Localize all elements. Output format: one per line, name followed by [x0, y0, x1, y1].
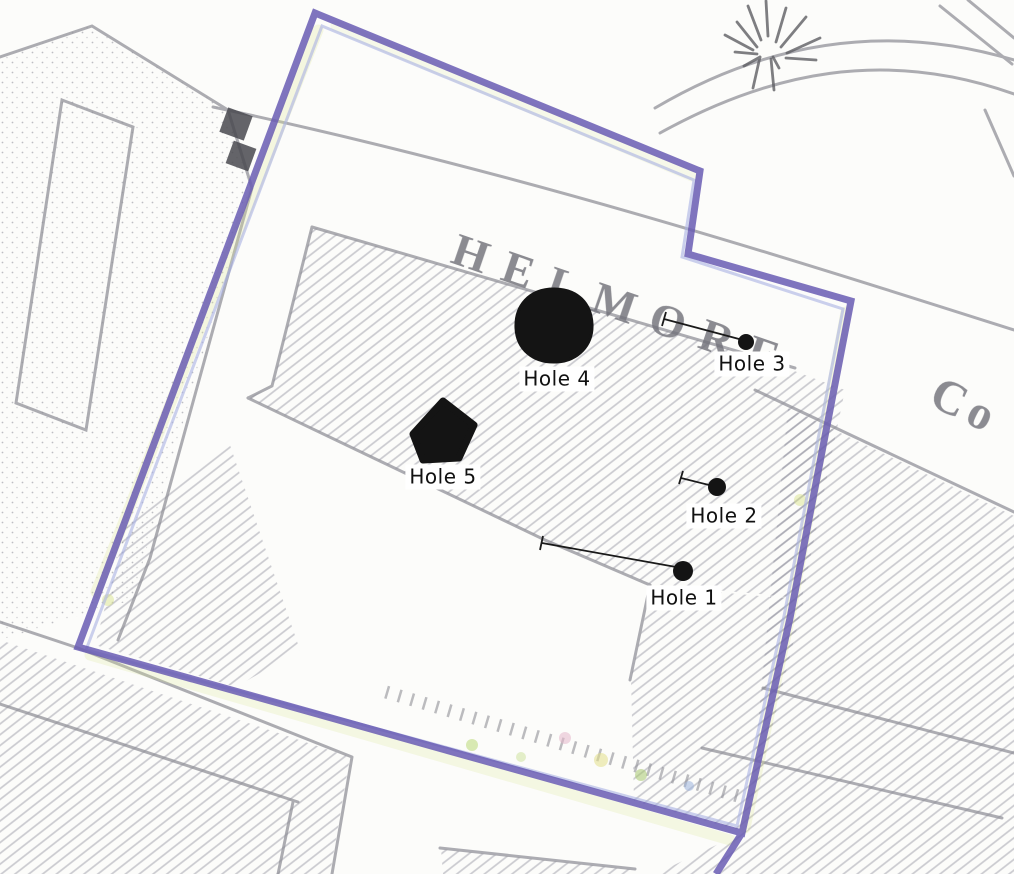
map-canvas: HELMORE Co	[0, 0, 1014, 874]
hole-4-label: Hole 4	[519, 367, 594, 392]
hole-3-marker	[738, 334, 754, 350]
hole-5-label: Hole 5	[405, 465, 480, 490]
street-name-suffix-text: Co	[922, 366, 1009, 445]
hole-2-label: Hole 2	[686, 504, 761, 529]
hole-2-marker	[708, 478, 726, 496]
hole-4-marker	[516, 289, 592, 362]
hole-1-label: Hole 1	[646, 586, 721, 611]
hole-3-label: Hole 3	[714, 352, 789, 377]
hole-1-marker	[673, 561, 693, 581]
historic-map-image: HELMORE Co	[0, 0, 1014, 874]
